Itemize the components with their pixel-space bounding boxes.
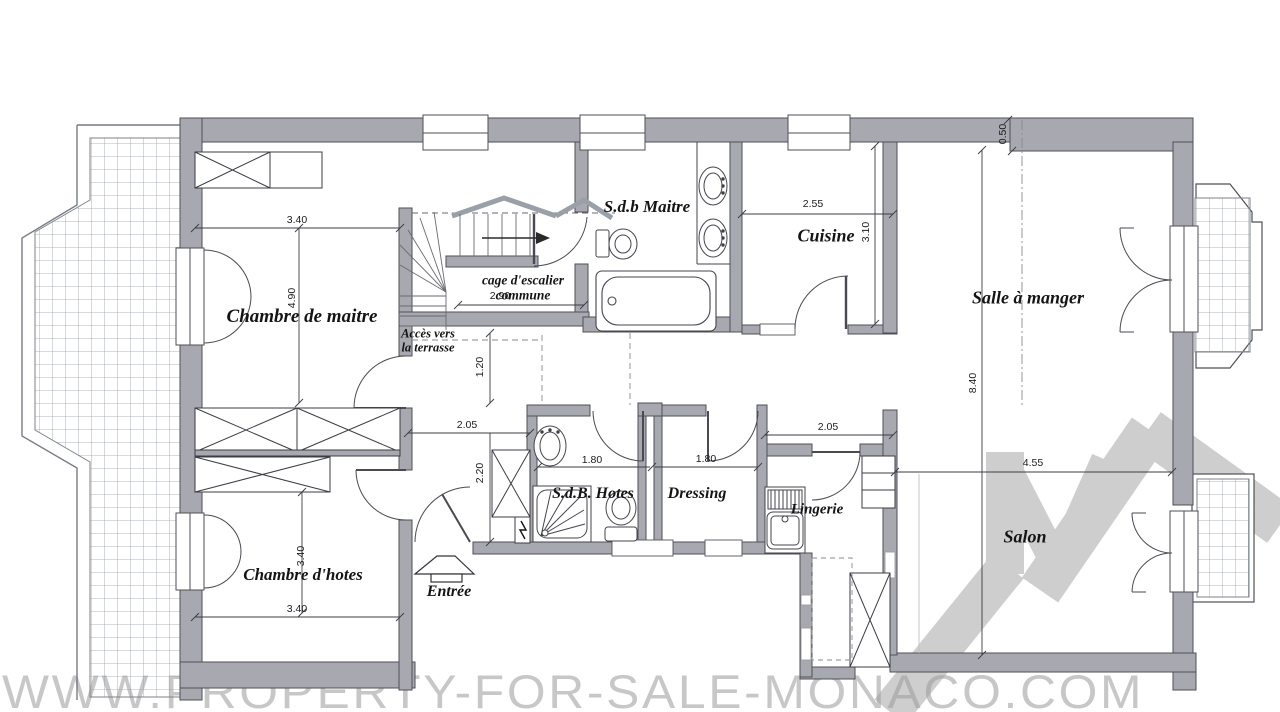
room-label-kitchen: Cuisine [797,226,854,247]
guest-bath-sink-fixture [534,426,566,466]
floor-plan-drawing [0,0,1280,712]
dimension-label: 3.40 [287,603,307,615]
dimension-label: 2.05 [818,421,838,433]
floor-plan-page: WWW.PROPERTY-FOR-SALE-MONACO.COM [0,0,1280,712]
dimension-label: 0.50 [997,124,1009,144]
dimension-label: 3.40 [287,214,307,226]
dimension-label: 2.20 [474,463,486,483]
room-label-dressing: Dressing [668,485,727,503]
room-label-guest-bedroom: Chambre d'hotes [243,565,363,585]
dimension-label: 2.05 [457,419,477,431]
laundry-sink-fixture [765,487,805,553]
terrace [22,125,180,700]
room-label-entrance: Entrée [427,583,471,601]
room-label-master-bedroom: Chambre de maitre [227,306,378,328]
dimension-label: 4.90 [286,288,298,308]
room-label-laundry: Lingerie [791,502,844,519]
room-label-living-room: Salon [1003,527,1046,548]
dimension-label: 4.55 [1023,457,1043,469]
balcony-lower [1192,474,1254,602]
toilet-fixture [596,229,637,259]
dimension-label: 3.10 [860,222,872,242]
dimension-label: 1.80 [696,453,716,465]
double-sink-fixture [697,142,730,264]
dimension-label: 2.90 [490,290,510,302]
room-label-guest-bath: S.d.B. Hotes [552,485,634,503]
entrance-canopy-icon [415,556,474,582]
dimension-label: 8.40 [967,373,979,393]
dimension-label: 2.55 [803,198,823,210]
dimension-label: 1.80 [582,454,602,466]
dimension-label: 3.40 [295,546,307,566]
balcony-upper [1195,184,1262,368]
room-label-terrace-access: Accès vers la terrasse [396,328,460,355]
electrical-panel-icon [515,517,530,543]
room-label-stairwell: cage d'escalier commune [453,273,593,302]
room-label-master-bath: S.d.b Maitre [604,197,690,217]
room-label-dining-room: Salle à manger [972,288,1084,309]
bathtub-fixture [596,271,716,331]
dimension-label: 1.20 [474,357,486,377]
